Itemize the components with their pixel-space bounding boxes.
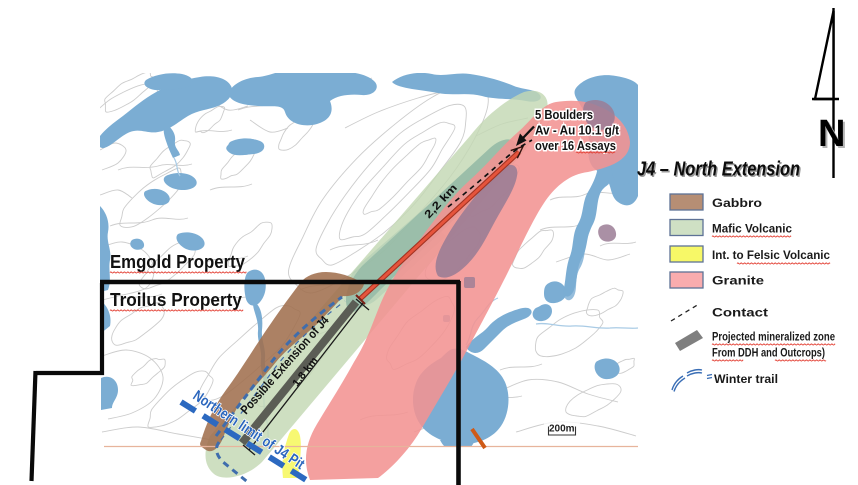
svg-text:Emgold Property: Emgold Property	[110, 252, 245, 272]
svg-text:Int. to Felsic Volcanic: Int. to Felsic Volcanic	[712, 250, 831, 262]
svg-text:Av - Au 10.1 g/t: Av - Au 10.1 g/t	[535, 124, 620, 138]
svg-text:over 16 Assays: over 16 Assays	[535, 139, 616, 153]
svg-text:Troilus Property: Troilus Property	[110, 290, 242, 310]
svg-text:200m: 200m	[549, 424, 575, 435]
svg-text:Contact: Contact	[712, 308, 768, 320]
svg-text:From DDH and Outcrops): From DDH and Outcrops)	[712, 348, 825, 360]
svg-text:Mafic Volcanic: Mafic Volcanic	[712, 224, 793, 236]
svg-text:Granite: Granite	[712, 276, 764, 288]
svg-text:Gabbro: Gabbro	[712, 198, 762, 210]
svg-text:Projected mineralized zone: Projected mineralized zone	[712, 332, 835, 344]
svg-text:J4 – North Extension: J4 – North Extension	[637, 159, 800, 181]
svg-text:N: N	[818, 113, 845, 155]
svg-text:Winter trail: Winter trail	[714, 374, 778, 386]
svg-text:5 Boulders: 5 Boulders	[535, 108, 593, 122]
